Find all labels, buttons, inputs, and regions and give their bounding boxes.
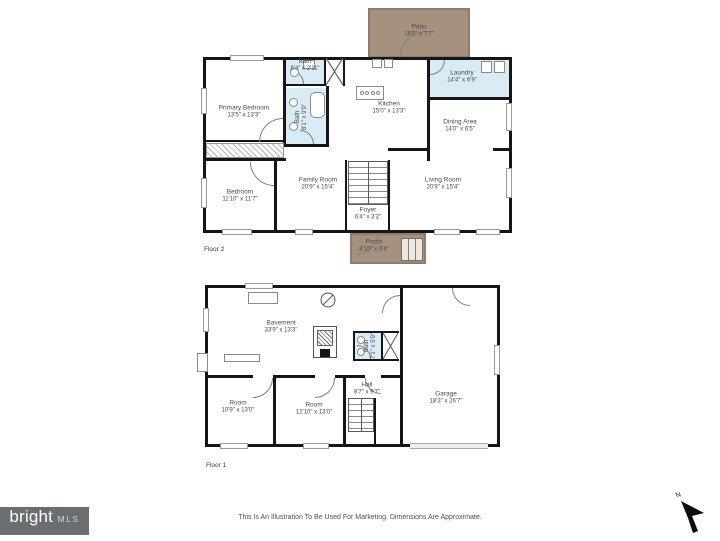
wall-segment (353, 331, 355, 361)
wall-segment (335, 375, 365, 378)
room-label-living-room: Living Room 20'9" x 15'4" (425, 177, 461, 192)
cooktop-burner-icon (376, 91, 380, 95)
furnace-icon (313, 326, 337, 358)
wall-segment (353, 359, 399, 361)
wall-segment (274, 158, 277, 233)
wall-segment (273, 375, 315, 378)
cooktop-burner-icon (371, 91, 375, 95)
window-marker (506, 103, 512, 131)
stairs-floor2 (348, 161, 388, 205)
disclaimer-text: This Is An Illustration To Be Used For M… (0, 514, 720, 521)
shelf-marker (224, 354, 260, 362)
kitchen-island (356, 86, 384, 100)
room-label-hall: Hall 8'7" x 9'7" (354, 382, 380, 397)
porch-steps (401, 238, 423, 261)
window-marker (220, 443, 248, 449)
wall-segment (283, 144, 329, 147)
room-label-primary-bedroom: Primary Bedroom 13'5" x 13'3" (219, 105, 270, 120)
room-label-room-left: Room 10'9" x 13'0" (222, 400, 255, 415)
dryer-icon (494, 61, 505, 73)
window-marker (201, 88, 207, 114)
cabinet-marker (248, 292, 278, 304)
window-marker (303, 443, 329, 449)
window-marker (201, 178, 207, 208)
room-label-family-room: Family Room 20'9" x 15'4" (299, 177, 337, 192)
room-label-bedroom: Bedroom 11'10" x 11'7" (222, 189, 257, 204)
north-arrow: N (674, 492, 714, 536)
washer-icon (481, 61, 492, 73)
room-label-bath-main: Bath 8'1" x 9'0" (295, 104, 309, 130)
cooktop-burner-icon (360, 91, 364, 95)
window-marker (230, 55, 264, 61)
chimney-marker (197, 353, 208, 372)
window-marker (494, 345, 500, 375)
garage-door-marker (410, 443, 488, 449)
wall-segment (286, 84, 326, 86)
wall-segment (326, 86, 329, 147)
floor2-tag: Floor 2 (204, 246, 224, 253)
wall-segment (345, 160, 347, 233)
room-label-foyer: Foyer 6'4" x 3'2" (355, 207, 381, 222)
cooktop-burner-icon (365, 91, 369, 95)
window-marker (222, 229, 252, 235)
window-marker (506, 168, 512, 198)
wall-segment (205, 375, 253, 378)
wall-segment (381, 375, 400, 378)
room-label-dining: Dining Area 14'0" x 6'5" (443, 119, 477, 134)
room-label-porch: Porch 8'10" x 6'4" (359, 239, 389, 254)
wall-segment (388, 148, 430, 151)
ceiling-fan-icon (320, 292, 336, 308)
room-label-bath-top: Bath 8'4" x 2'11" (290, 59, 319, 73)
room-label-basement: Basement 33'9" x 13'3" (265, 320, 298, 335)
wall-segment (427, 97, 512, 100)
room-label-laundry: Laundry 14'4" x 6'9" (447, 70, 477, 85)
room-label-patio: Patio 16'5" x 7'7" (404, 24, 434, 39)
wall-segment (374, 398, 376, 447)
wall-segment (400, 285, 403, 447)
bright-mls-logo: bright*MLS (0, 507, 89, 535)
window-marker (203, 308, 209, 332)
wall-segment (343, 57, 345, 86)
window-marker (245, 283, 273, 289)
room-label-garage: Garage 18'3" x 26'7" (430, 391, 463, 406)
stairs-floor1 (348, 398, 374, 432)
closet-hatch (206, 143, 284, 158)
wall-segment (343, 375, 346, 447)
window-marker (476, 229, 500, 235)
closet-x-icon (326, 58, 343, 85)
window-marker (295, 229, 313, 235)
closet-x-icon (383, 333, 398, 359)
kitchen-sink-icon (372, 59, 382, 68)
room-label-bath-floor1: Bath 7'1" x 5'9" (364, 333, 378, 359)
bathtub-icon (310, 92, 325, 118)
room-label-kitchen: Kitchen 15'0" x 13'3" (373, 101, 406, 116)
stove-icon (384, 59, 393, 68)
wall-segment (388, 160, 390, 233)
room-label-room-center: Room 12'10" x 13'0" (296, 402, 332, 417)
floor1-tag: Floor 1 (206, 462, 226, 469)
wall-segment (493, 148, 512, 151)
window-marker (434, 229, 460, 235)
floorplan-canvas: Patio 16'5" x 7'7" Porch 8'10" x 6'4" (0, 0, 720, 540)
wall-segment (283, 57, 286, 147)
wall-segment (273, 375, 276, 447)
